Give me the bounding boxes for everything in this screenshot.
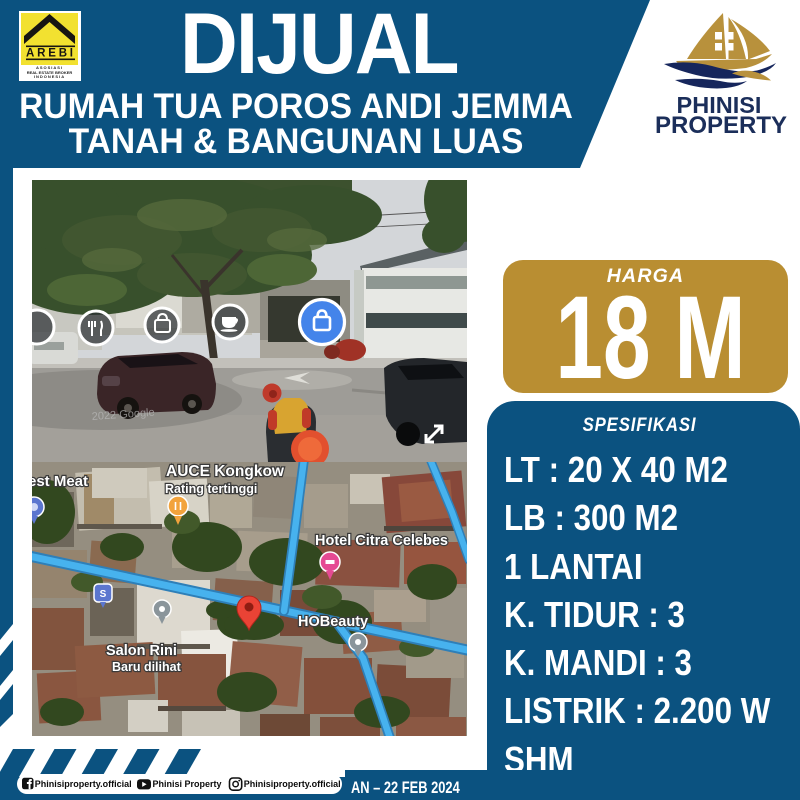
svg-text:Salon Rini: Salon Rini	[106, 643, 177, 659]
svg-text:HOBeauty: HOBeauty	[298, 614, 368, 630]
svg-text:est Meat: est Meat	[32, 473, 88, 490]
svg-text:Phinisi Property: Phinisi Property	[153, 779, 222, 789]
svg-text:AREBI: AREBI	[26, 48, 73, 60]
svg-text:S: S	[100, 589, 107, 600]
svg-text:PROPERTY: PROPERTY	[655, 112, 787, 139]
svg-text:Phinisiproperty.official: Phinisiproperty.official	[35, 779, 132, 789]
svg-text:Rating tertinggi: Rating tertinggi	[165, 482, 257, 496]
svg-text:Phinisiproperty.official: Phinisiproperty.official	[244, 779, 341, 789]
svg-text:Hotel Citra Celebes: Hotel Citra Celebes	[315, 533, 448, 549]
svg-text:AUCE Kongkow: AUCE Kongkow	[166, 463, 285, 480]
svg-text:Baru dilihat: Baru dilihat	[112, 660, 182, 674]
